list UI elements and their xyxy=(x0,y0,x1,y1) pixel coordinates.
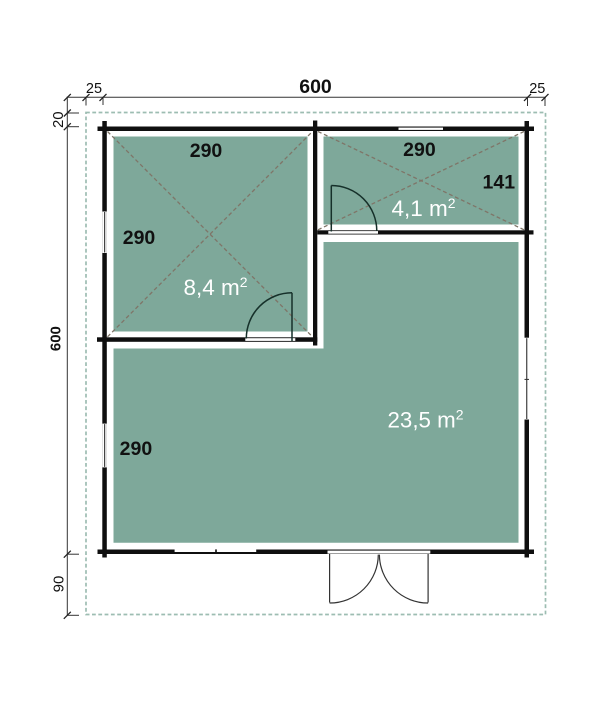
svg-text:600: 600 xyxy=(299,76,332,98)
svg-text:20: 20 xyxy=(50,111,67,128)
svg-text:4,1 m2: 4,1 m2 xyxy=(391,195,455,221)
svg-text:290: 290 xyxy=(120,438,153,460)
svg-text:141: 141 xyxy=(483,172,516,194)
svg-text:290: 290 xyxy=(123,227,156,249)
svg-text:290: 290 xyxy=(190,140,223,162)
svg-text:600: 600 xyxy=(47,326,64,351)
svg-text:290: 290 xyxy=(403,139,436,161)
svg-text:25: 25 xyxy=(86,81,102,97)
svg-text:90: 90 xyxy=(51,576,68,593)
svg-text:8,4 m2: 8,4 m2 xyxy=(183,274,247,300)
svg-text:25: 25 xyxy=(529,81,545,97)
svg-text:23,5 m2: 23,5 m2 xyxy=(388,407,464,433)
